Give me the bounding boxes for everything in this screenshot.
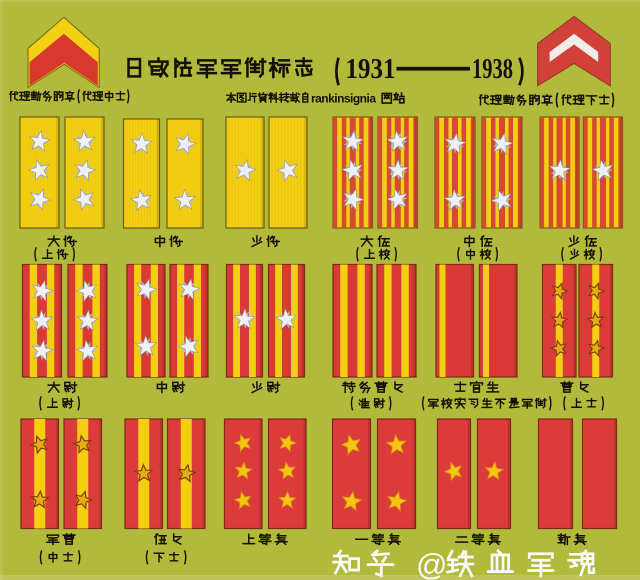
svg-text:1931: 1931 (346, 52, 396, 84)
svg-text:rankinsignia: rankinsignia (311, 92, 376, 106)
svg-text:1938: 1938 (472, 54, 513, 85)
svg-text:@: @ (416, 547, 447, 580)
